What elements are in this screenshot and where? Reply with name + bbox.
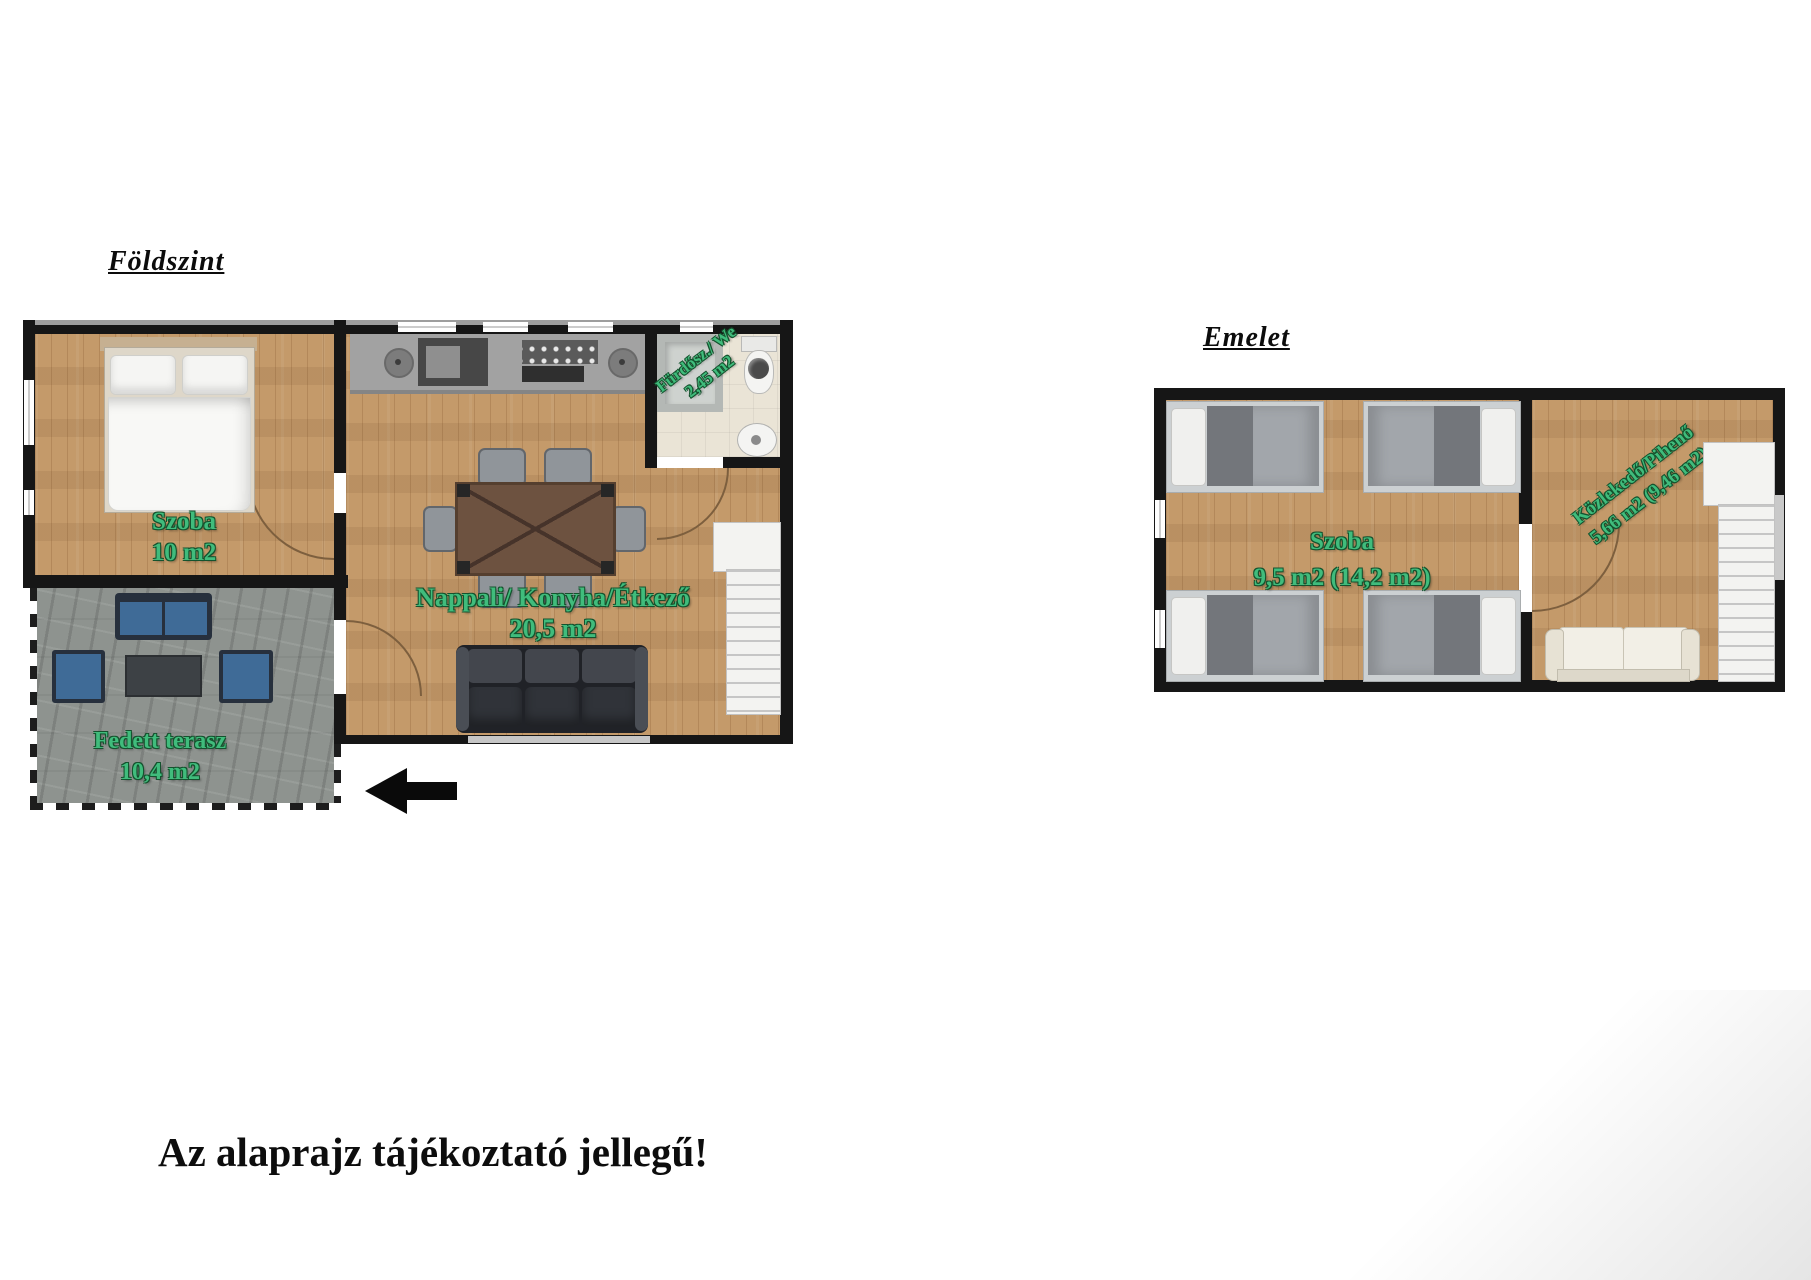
- arrow-head: [365, 768, 407, 814]
- bedroom-label: Szoba 10 m2: [84, 506, 284, 568]
- bedroom-label-area: 10 m2: [84, 537, 284, 568]
- disclaimer-text: Az alaprajz tájékoztató jellegű!: [158, 1128, 708, 1176]
- bed-blanket-head: [1207, 406, 1253, 486]
- bathroom-window: [680, 322, 713, 332]
- kitchen-window-2: [483, 322, 528, 332]
- sofa-back-cushion: [582, 649, 636, 683]
- dining-chair-left: [423, 506, 458, 552]
- terrace-chair-right: [219, 650, 273, 703]
- table-corner: [457, 484, 470, 497]
- dining-chair-right: [611, 506, 646, 552]
- bedroom-terrace-wall: [23, 575, 348, 588]
- burner-dot: [619, 359, 625, 365]
- stove-plate: [426, 346, 460, 378]
- upper-window-left-1: [1155, 500, 1165, 538]
- living-terrace-window: [468, 736, 650, 743]
- terrace-chair-left: [52, 650, 105, 703]
- upper-sofa-back: [1557, 669, 1690, 682]
- burner-right-icon: [608, 348, 638, 378]
- bed-pillow-right: [182, 355, 248, 395]
- stove: [418, 338, 488, 386]
- sofa-seat-cushion: [582, 687, 636, 727]
- terrace-table: [125, 655, 202, 697]
- bed-blanket-head: [1434, 595, 1480, 675]
- bed-pillow: [1481, 597, 1516, 675]
- burner-dot: [395, 359, 401, 365]
- upper-staircase-landing: [1703, 442, 1775, 506]
- bedroom-window-1: [24, 380, 34, 445]
- sofa-seat-cushion: [468, 687, 522, 727]
- terrace-label-area: 10,4 m2: [60, 757, 260, 788]
- living-room-label-area: 20,5 m2: [353, 613, 753, 644]
- bed-pillow: [1171, 597, 1206, 675]
- outer-wall-left: [23, 320, 35, 588]
- living-room-label: Nappali/ Konyha/Étkező 20,5 m2: [353, 582, 753, 644]
- upper-floor-title: Emelet: [1203, 322, 1290, 354]
- upper-bedroom-label-area: 9,5 m2 (14,2 m2): [1192, 560, 1492, 596]
- table-corner: [601, 484, 614, 497]
- basin-drain: [751, 435, 761, 445]
- terrace-loveseat: [115, 593, 212, 640]
- sink-faucet-panel: [522, 340, 598, 364]
- sofa-seat-cushion: [525, 687, 579, 727]
- single-bed-top-left: [1166, 401, 1324, 493]
- staircase: [726, 569, 781, 715]
- bed-pillow: [1481, 408, 1516, 486]
- kitchen-window-3: [568, 322, 613, 332]
- bathroom-door-opening: [657, 457, 723, 468]
- table-corner: [601, 561, 614, 574]
- upper-sofa-seat: [1559, 627, 1624, 673]
- single-bed-top-right: [1363, 401, 1521, 493]
- ground-floor-plan: Szoba 10 m2 Nappali/ Konyha/Étkező 20,5 …: [23, 320, 793, 816]
- bed-blanket: [1368, 595, 1434, 675]
- upper-bedroom-label-name: Szoba: [1192, 524, 1492, 560]
- sofa-back-cushion: [525, 649, 579, 683]
- sofa-back-cushion: [468, 649, 522, 683]
- arrow-shaft: [405, 782, 457, 800]
- sofa-arm-left: [456, 647, 469, 731]
- terrace-open-edge-bottom: [30, 803, 337, 810]
- single-bed-bottom-left: [1166, 590, 1324, 682]
- bed-pillow-left: [110, 355, 176, 395]
- sofa-arm-right: [635, 647, 648, 731]
- entrance-arrow-icon: [365, 768, 457, 814]
- upper-staircase: [1718, 504, 1775, 682]
- double-bed: [100, 337, 257, 513]
- bedroom-window-2: [24, 490, 34, 515]
- bed-blanket: [1253, 406, 1319, 486]
- table-corner: [457, 561, 470, 574]
- toilet-lid: [748, 358, 769, 379]
- upper-floor-plan: Szoba 9,5 m2 (14,2 m2) Közlekedő/Pihenő …: [1154, 388, 1785, 692]
- bed-duvet: [108, 397, 251, 511]
- upper-wall-top: [1154, 388, 1785, 400]
- bed-blanket: [1253, 595, 1319, 675]
- terrace-door-opening: [334, 620, 346, 694]
- ground-floor-title: Földszint: [108, 246, 224, 278]
- terrace-label-name: Fedett terasz: [60, 726, 260, 757]
- terrace-open-edge-left: [30, 588, 37, 803]
- loveseat-cushion: [120, 602, 162, 635]
- bed-blanket: [1368, 406, 1434, 486]
- upper-window-left-2: [1155, 610, 1165, 648]
- single-bed-bottom-right: [1363, 590, 1521, 682]
- bedroom-label-name: Szoba: [84, 506, 284, 537]
- upper-sofa: [1545, 625, 1700, 680]
- kitchen-counter: [350, 334, 645, 394]
- sink-basin: [522, 366, 584, 382]
- bed-blanket-head: [1207, 595, 1253, 675]
- loveseat-cushion: [165, 602, 207, 635]
- bed-blanket-head: [1434, 406, 1480, 486]
- dining-table: [455, 482, 616, 576]
- bedroom-door-opening: [334, 473, 346, 513]
- burner-left-icon: [384, 348, 414, 378]
- upper-sofa-seat: [1623, 627, 1688, 673]
- corner-shadow: [1341, 990, 1811, 1280]
- terrace-label: Fedett terasz 10,4 m2: [60, 726, 260, 788]
- living-sofa: [456, 645, 648, 733]
- upper-window-right: [1774, 495, 1784, 580]
- upper-bedroom-label: Szoba 9,5 m2 (14,2 m2): [1192, 524, 1492, 596]
- washbasin: [737, 423, 777, 457]
- staircase-landing: [713, 522, 781, 572]
- living-room-label-name: Nappali/ Konyha/Étkező: [353, 582, 753, 613]
- terrace-open-edge-right: [334, 744, 341, 803]
- kitchen-window-1: [398, 322, 456, 332]
- outer-wall-right: [780, 320, 793, 744]
- bed-pillow: [1171, 408, 1206, 486]
- floor-plan-page: { "ground_floor": { "title": "Földszint"…: [0, 0, 1811, 1280]
